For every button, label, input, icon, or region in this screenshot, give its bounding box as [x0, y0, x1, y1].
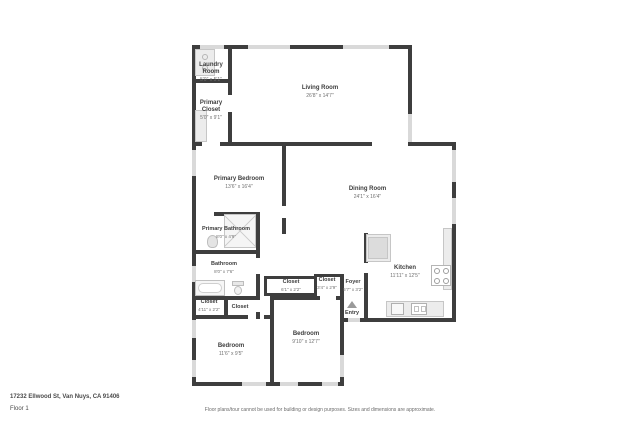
wall — [256, 274, 260, 300]
wall — [192, 250, 256, 254]
room-label-bedroom-left: Bedroom 11'6" x 9'5" — [196, 343, 266, 357]
disclaimer-text: Floor plans/tour cannot be used for buil… — [0, 407, 640, 413]
entry-door-threshold — [348, 318, 360, 322]
room-label-closet-entry: Closet 3'4" x 2'9" — [312, 277, 342, 290]
room-label-kitchen: Kitchen 11'11" x 12'5" — [370, 265, 440, 279]
room-label-primary-closet: Primary Closet 5'0" x 9'1" — [192, 100, 230, 121]
entry-label: Entry — [338, 310, 366, 316]
room-label-bedroom-right: Bedroom 9'10" x 12'7" — [274, 331, 338, 345]
window — [192, 150, 196, 176]
wall — [196, 142, 202, 146]
wall — [192, 315, 248, 319]
window — [242, 382, 266, 386]
window — [340, 355, 344, 377]
window — [408, 114, 412, 142]
room-label-closet-hall: Closet 4'11" x 2'2" — [193, 299, 225, 312]
floor-plan: Laundry Room 5'0" x 5'1" Primary Closet … — [0, 0, 640, 427]
wall — [336, 296, 344, 300]
room-label-closet-hall-small: Closet — [226, 304, 254, 311]
toilet-bowl-icon — [234, 286, 242, 295]
wall — [368, 318, 456, 322]
window — [322, 382, 338, 386]
kitchen-sink-icon — [411, 303, 427, 315]
room-label-laundry: Laundry Room 5'0" x 5'1" — [192, 62, 230, 83]
bathtub-icon — [195, 280, 225, 296]
entry-arrow-icon — [347, 301, 357, 308]
room-label-living: Living Room 26'8" x 14'7" — [250, 85, 390, 99]
property-address: 17232 Ellwood St, Van Nuys, CA 91406 — [10, 394, 120, 400]
wall — [270, 296, 320, 300]
window — [192, 320, 196, 338]
window — [248, 45, 290, 49]
room-label-primary-bedroom: Primary Bedroom 13'6" x 16'4" — [194, 176, 284, 190]
wall — [340, 318, 348, 322]
window — [452, 198, 456, 224]
wall — [256, 312, 260, 319]
fridge-icon — [368, 237, 388, 259]
window — [343, 45, 389, 49]
room-label-bathroom: Bathroom 8'0" x 7'6" — [194, 261, 254, 274]
dishwasher-icon — [391, 303, 404, 315]
room-label-closet-center: Closet 6'1" x 2'2" — [266, 279, 316, 292]
room-label-foyer: Foyer 5'7" x 3'2" — [340, 279, 366, 292]
wall — [256, 212, 260, 258]
window — [452, 150, 456, 182]
wall — [408, 142, 456, 146]
wall — [220, 142, 372, 146]
room-label-dining: Dining Room 24'1" x 16'4" — [300, 186, 435, 200]
window — [192, 360, 196, 377]
window — [280, 382, 298, 386]
wall — [264, 293, 317, 296]
room-label-primary-bathroom: Primary Bathroom 8'0" x 4'9" — [196, 226, 256, 239]
wall — [282, 218, 286, 234]
